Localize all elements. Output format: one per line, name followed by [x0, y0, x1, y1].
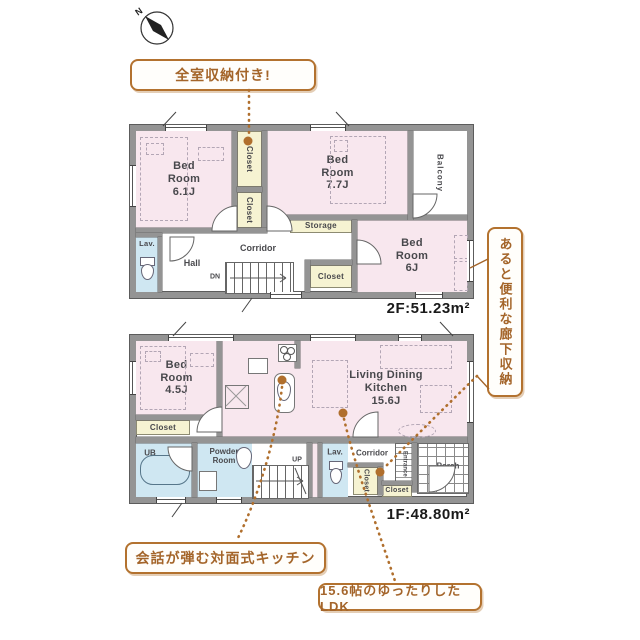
- wall: [318, 443, 322, 497]
- powder-room-label: Powder Room: [210, 447, 239, 465]
- window-icon: [168, 335, 234, 341]
- wall: [305, 260, 352, 265]
- room-storage: Storage: [290, 218, 352, 233]
- room-closet-corridor: Closet: [353, 467, 378, 495]
- washing-machine-icon: [199, 471, 217, 491]
- window-icon: [216, 497, 242, 503]
- wall: [267, 215, 467, 220]
- window-icon: [156, 497, 186, 503]
- floor-1-plan: Bed Room 4.5J Living Dining Kitchen 15.6…: [130, 335, 473, 503]
- room-closet-bottom: Closet: [310, 265, 352, 288]
- room-closet-bedroom-label: Closet: [150, 423, 176, 432]
- pillow-icon: [145, 351, 161, 362]
- floor-1-area-label: 1F:48.80m²: [356, 506, 470, 523]
- callout-ldk-text: 15.6帖のゆったりしたLDK: [320, 580, 480, 614]
- wall: [158, 237, 162, 292]
- sofa-icon: [380, 345, 452, 369]
- window-icon: [310, 125, 346, 131]
- window-icon: [130, 165, 136, 207]
- wall: [136, 415, 217, 420]
- stove-icon: [278, 344, 297, 362]
- water-heater-icon: [225, 385, 249, 409]
- window-icon: [310, 335, 356, 341]
- room-closet-bottom-label: Closet: [318, 272, 344, 281]
- room-closet-corridor-label: Closet: [361, 469, 369, 492]
- room-balcony: Balcony: [413, 131, 467, 215]
- wall: [217, 341, 222, 437]
- porch-label: Porch: [437, 462, 460, 471]
- stairs-up-label: UP: [292, 457, 302, 464]
- room-closet-top: Closet: [237, 131, 262, 187]
- callout-ldk: 15.6帖のゆったりしたLDK: [318, 583, 482, 611]
- room-lavatory-2f-label: Lav.: [139, 237, 155, 249]
- wall: [352, 220, 357, 292]
- room-closet-entrance: Closet: [382, 485, 412, 497]
- window-icon: [467, 361, 473, 423]
- corridor-1f-label: Corridor: [356, 449, 388, 458]
- callout-hallway-storage: あると便利な廊下収納: [487, 227, 523, 397]
- pillow-icon: [146, 143, 164, 155]
- window-icon: [270, 292, 302, 298]
- bathtub-icon: [140, 455, 190, 485]
- window-icon: [398, 335, 422, 341]
- staircase-down: [225, 262, 294, 294]
- desk-icon: [198, 147, 224, 161]
- room-balcony-label: Balcony: [436, 154, 445, 192]
- rug-icon: [398, 424, 436, 438]
- staircase-up: [252, 465, 309, 499]
- room-bedroom-6: Bed Room 6J: [357, 220, 467, 292]
- room-closet-mid: Closet: [237, 192, 262, 228]
- refrigerator-space-icon: [248, 358, 268, 374]
- hall-label: Hall: [184, 258, 201, 268]
- room-entrance-label: Entrance: [402, 451, 408, 477]
- wall: [232, 131, 237, 233]
- window-icon: [165, 125, 207, 131]
- shelf-icon: [454, 261, 468, 291]
- wall: [412, 443, 417, 492]
- desk-icon: [454, 235, 468, 259]
- room-bedroom-6-label: Bed Room 6J: [396, 237, 428, 276]
- window-icon: [467, 240, 473, 282]
- dining-table-icon: [312, 360, 348, 408]
- callout-all-rooms-storage-text: 全室収納付き!: [175, 65, 271, 85]
- window-icon: [130, 361, 136, 395]
- room-closet-top-label: Closet: [245, 146, 254, 172]
- room-storage-label: Storage: [305, 221, 337, 230]
- room-closet-bedroom: Closet: [136, 420, 190, 435]
- floorplan-page: { "compass": { "north_label": "N" }, "ca…: [0, 0, 640, 640]
- chair-icon: [420, 385, 452, 413]
- window-icon: [415, 292, 443, 298]
- callout-all-rooms-storage: 全室収納付き!: [130, 59, 316, 91]
- wall: [408, 131, 413, 220]
- floor-2-area-label: 2F:51.23m²: [356, 300, 470, 317]
- callout-kitchen: 会話が弾む対面式キッチン: [125, 542, 326, 574]
- compass-north-label: N: [133, 6, 144, 18]
- stairs-down-label: DN: [210, 274, 220, 281]
- wall: [305, 260, 310, 292]
- room-closet-entrance-label: Closet: [385, 487, 408, 495]
- pillow-icon: [334, 140, 348, 152]
- callout-hallway-storage-text: あると便利な廊下収納: [496, 237, 515, 387]
- wall: [237, 187, 262, 192]
- corridor-2f-label: Corridor: [240, 243, 276, 253]
- lavatory-1f-label: Lav.: [327, 448, 342, 457]
- wall: [192, 443, 197, 497]
- desk-icon: [190, 353, 214, 367]
- floor-2-plan: Bed Room 6.1J Closet Closet Bed Room 7.7…: [130, 125, 473, 298]
- callout-kitchen-text: 会話が弾む対面式キッチン: [136, 548, 316, 568]
- compass-icon: N: [133, 6, 173, 44]
- wall: [382, 481, 412, 485]
- room-closet-mid-label: Closet: [245, 197, 254, 223]
